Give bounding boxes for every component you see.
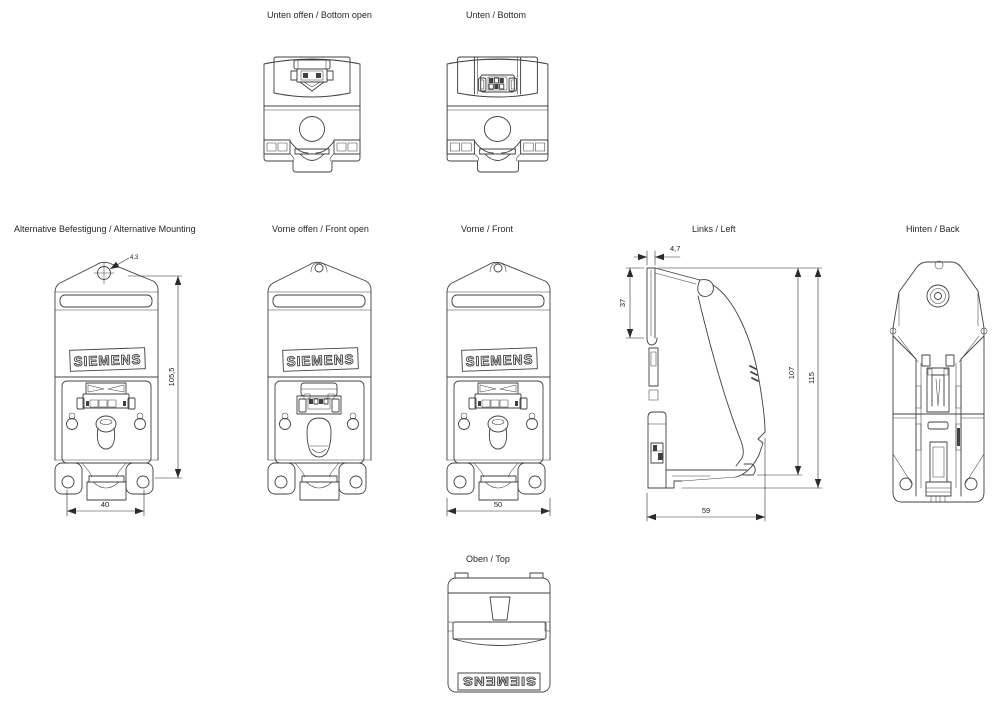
side-holes: [459, 413, 538, 430]
bottom-connector: [926, 442, 951, 502]
view-top: SIEMENS: [444, 572, 554, 700]
screw-boss: [927, 285, 949, 307]
dimension-width: 50: [447, 498, 550, 516]
lower-panel: [454, 381, 543, 463]
dimension-upper-height: 37: [618, 268, 644, 338]
device-outline: [890, 261, 987, 502]
depth-value: 59: [702, 506, 710, 515]
front-open-drawing: SIEMENS: [263, 248, 375, 510]
siemens-logo-text: SIEMENS: [465, 352, 533, 369]
view-label-alt-mounting: Alternative Befestigung / Alternative Mo…: [14, 224, 196, 234]
view-label-bottom: Unten / Bottom: [466, 10, 526, 20]
siemens-logo: SIEMENS: [462, 348, 538, 372]
bottom-feet: [55, 463, 153, 500]
lock-slot: [307, 418, 331, 457]
bottom-feet: [447, 463, 545, 500]
left-drawing: 4,7 37 107 115: [612, 238, 827, 530]
keyhole: [96, 416, 116, 449]
siemens-logo: SIEMENS: [283, 348, 359, 372]
bottom-feet: [447, 140, 548, 161]
siemens-logo: SIEMENS: [70, 348, 146, 372]
upper-height-value: 37: [618, 299, 627, 307]
keyhole: [488, 416, 508, 449]
view-label-left: Links / Left: [692, 224, 736, 234]
view-left: 4,7 37 107 115: [612, 238, 827, 530]
top-drawing: SIEMENS: [444, 572, 554, 700]
siemens-logo-text: SIEMENS: [286, 352, 354, 369]
lower-panel: [62, 381, 151, 463]
device-outline: [264, 59, 360, 172]
din-clip-details: [648, 348, 666, 488]
view-label-bottom-open: Unten offen / Bottom open: [267, 10, 372, 20]
din-rail-channel: [893, 336, 984, 496]
dimension-body-height: 107: [658, 268, 822, 475]
bottom-open-drawing: [262, 46, 362, 176]
view-alt-mounting: 4,3 SIEMENS: [50, 248, 190, 528]
view-label-front: Vorne / Front: [461, 224, 513, 234]
bottom-feet: [264, 140, 360, 161]
technical-drawing-sheet: Unten offen / Bottom open Unten / Bottom…: [0, 0, 1000, 707]
clip-depth-value: 4,7: [670, 244, 680, 253]
view-bottom-open: [262, 46, 362, 176]
side-holes: [67, 413, 146, 430]
view-bottom: [445, 46, 550, 176]
rj45-socket: [479, 75, 517, 92]
alt-mounting-drawing: 4,3 SIEMENS: [50, 248, 190, 528]
back-drawing: [890, 256, 994, 508]
bottom-drawing: [445, 46, 550, 176]
lever-handle: [448, 597, 550, 646]
side-holes: [280, 413, 359, 430]
center-hole: [300, 117, 325, 142]
view-front: SIEMENS: [442, 248, 554, 520]
bottom-feet: [893, 454, 984, 490]
mounting-screw-hole: [94, 262, 114, 284]
rj45-connector: [291, 60, 333, 91]
width-value: 50: [494, 500, 502, 509]
hole-spacing-value: 40: [101, 500, 109, 509]
dimension-hole-diameter: 4,3: [110, 255, 139, 269]
device-outline: [647, 268, 765, 477]
view-front-open: SIEMENS: [263, 248, 375, 510]
center-hole: [484, 117, 510, 142]
view-label-back: Hinten / Back: [906, 224, 960, 234]
siemens-logo: SIEMENS: [458, 673, 540, 690]
lower-panel: [275, 381, 364, 463]
body-height-value: 107: [787, 367, 796, 380]
height-value: 105,5: [167, 368, 176, 387]
view-label-top: Oben / Top: [466, 554, 510, 564]
siemens-logo-text: SIEMENS: [462, 674, 536, 688]
total-height-value: 115: [807, 372, 816, 384]
front-drawing: SIEMENS: [442, 248, 554, 520]
device-outline: [447, 59, 548, 172]
view-back: [890, 256, 994, 508]
hole-diameter-value: 4,3: [130, 255, 139, 261]
dimension-clip-depth: 4,7: [634, 244, 680, 265]
view-label-front-open: Vorne offen / Front open: [272, 224, 369, 234]
siemens-logo-text: SIEMENS: [73, 352, 141, 369]
bottom-feet: [268, 463, 366, 500]
dimension-depth: 59: [647, 438, 765, 521]
